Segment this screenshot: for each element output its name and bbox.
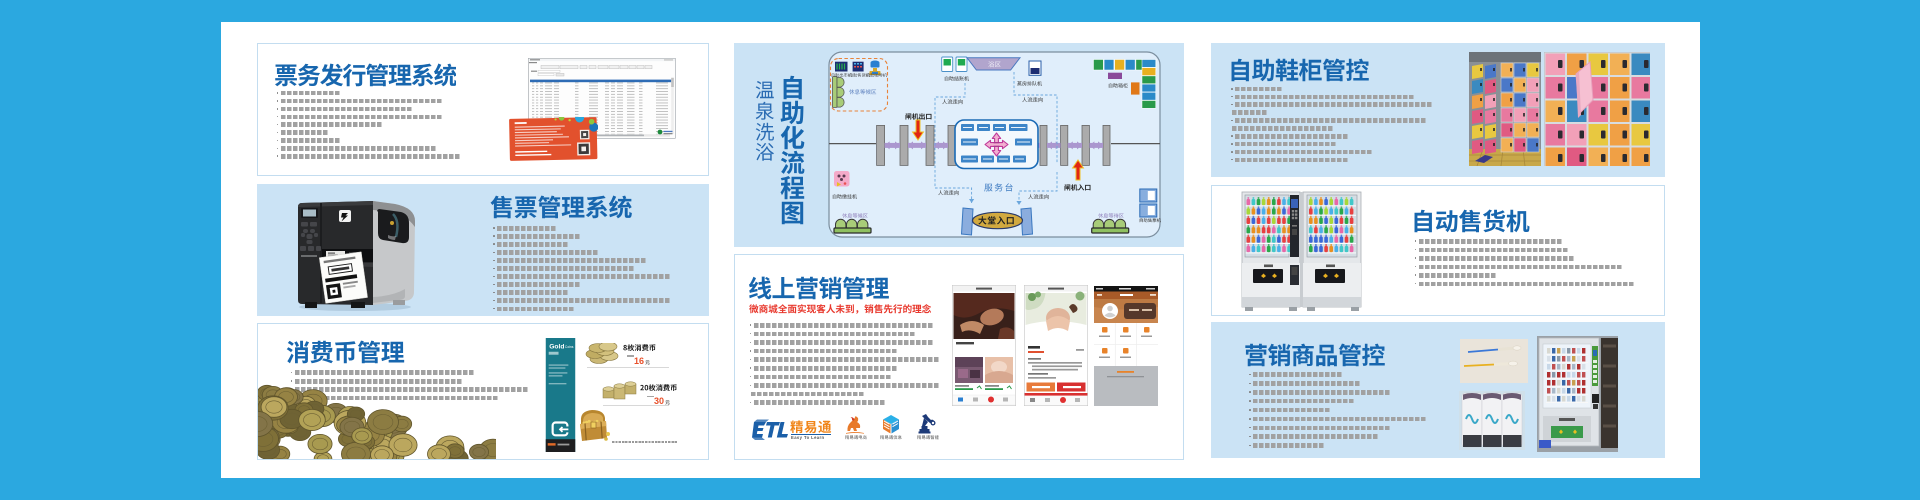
svg-text:Gold: Gold — [549, 343, 564, 350]
svg-text:Coins: Coins — [565, 345, 574, 349]
